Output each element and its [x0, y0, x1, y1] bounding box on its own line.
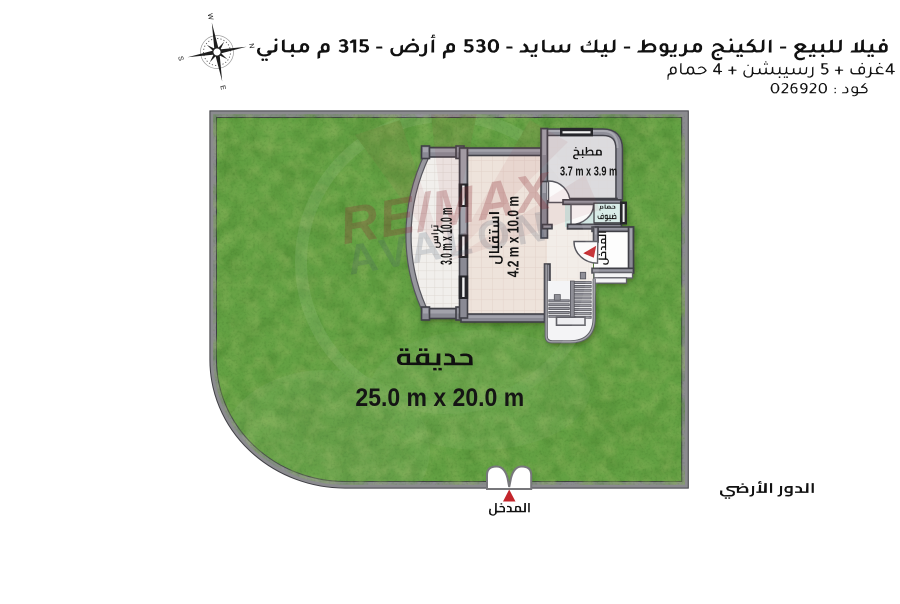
svg-text:3.7 m x 3.9 m: 3.7 m x 3.9 m	[560, 165, 617, 179]
svg-text:25.0 m x 20.0 m: 25.0 m x 20.0 m	[355, 384, 524, 412]
svg-text:4.2 m x 10.0 m: 4.2 m x 10.0 m	[504, 196, 522, 277]
svg-text:3.0 m x 10.0 m: 3.0 m x 10.0 m	[437, 207, 456, 264]
